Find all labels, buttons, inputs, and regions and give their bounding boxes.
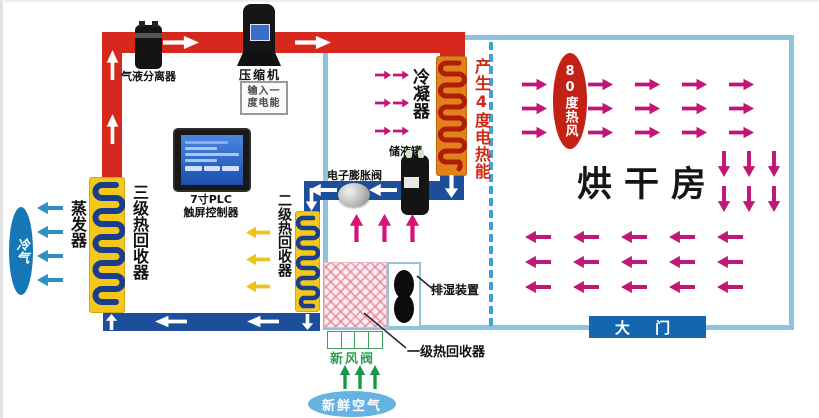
condenser-right-arrow: [375, 98, 391, 108]
gas-liquid-separator-label: 气液分离器: [121, 68, 176, 84]
warm-air-up-arrow: [377, 214, 392, 242]
hot-air-right-arrow: [729, 126, 754, 139]
pipe-flow-left-arrow: [247, 315, 279, 328]
pipe-flow-down-arrow: [444, 175, 459, 198]
hot-air-oval: 80度热风: [553, 53, 587, 149]
heat-pump-drying-diagram: 大 门 气液分离器 压缩机 输入一 度电能 7寸PLC 触屏控制器 储液罐: [0, 0, 819, 418]
hot-air-right-arrow: [729, 78, 754, 91]
fresh-air-up-arrow: [369, 365, 381, 389]
room-left-arrow: [525, 255, 551, 269]
fresh-air-ellipse: 新鲜空气: [308, 391, 396, 417]
cold-air-label: 冷气: [12, 238, 31, 264]
room-down-arrow: [717, 151, 731, 177]
hot-air-right-arrow: [682, 126, 707, 139]
warm-air-up-arrow: [405, 214, 420, 242]
pipe-flow-left-arrow: [369, 183, 397, 197]
room-left-arrow: [669, 230, 695, 244]
badge-line2: 度电能: [248, 98, 281, 111]
hot-air-right-arrow: [635, 78, 660, 91]
recovery-left-arrow: [246, 226, 270, 239]
hot-air-right-arrow: [588, 78, 613, 91]
plc-label-line2: 触屏控制器: [161, 206, 261, 219]
plc-label: 7寸PLC 触屏控制器: [161, 193, 261, 219]
pipe-flow-up-arrow: [106, 114, 119, 144]
fresh-air-valve-grille: [327, 331, 381, 349]
cold-air-left-arrow: [37, 273, 63, 287]
room-left-arrow: [573, 230, 599, 244]
tertiary-recovery-label: 三级热回收器: [127, 184, 151, 316]
compressor: [243, 4, 275, 56]
room-left-arrow: [669, 280, 695, 294]
primary-recovery-label: 一级热回收器: [407, 341, 485, 360]
pipe-flow-right-arrow: [295, 35, 331, 50]
room-down-arrow: [742, 151, 756, 177]
expansion-valve-label: 电子膨胀阀: [327, 167, 382, 183]
condenser-right-arrow: [393, 126, 409, 136]
room-down-arrow: [767, 151, 781, 177]
room-left-arrow: [573, 255, 599, 269]
hot-air-right-arrow: [588, 102, 613, 115]
main-door-label: 大 门: [615, 317, 680, 338]
hot-air-right-arrow: [729, 102, 754, 115]
cold-air-left-arrow: [37, 201, 63, 215]
condenser-right-arrow: [393, 98, 409, 108]
pipe-flow-up-arrow: [106, 50, 119, 80]
condenser-right-arrow: [375, 126, 391, 136]
warm-air-up-arrow: [349, 214, 364, 242]
room-left-arrow: [621, 280, 647, 294]
room-left-arrow: [621, 230, 647, 244]
cold-air-left-arrow: [37, 249, 63, 263]
hot-air-right-arrow: [635, 126, 660, 139]
primary-recovery-block: [324, 262, 387, 328]
evaporator-label: 蒸发器: [65, 200, 89, 290]
condenser-right-arrow: [393, 70, 409, 80]
pipe-flow-down-arrow: [301, 314, 314, 330]
hot-air-right-arrow: [588, 126, 613, 139]
room-left-arrow: [669, 255, 695, 269]
plc-label-line1: 7寸PLC: [161, 193, 261, 206]
pipe-flow-down-arrow: [305, 188, 318, 211]
secondary-recovery-label: 二级热回收器: [274, 193, 294, 313]
condenser-right-arrow: [375, 70, 391, 80]
fresh-air-up-arrow: [354, 365, 366, 389]
fan-icon: [394, 294, 414, 323]
fresh-air-label: 新鲜空气: [322, 395, 382, 414]
room-down-arrow: [742, 186, 756, 212]
hot-air-right-arrow: [522, 102, 547, 115]
room-left-arrow: [525, 280, 551, 294]
pipe-flow-left-arrow: [155, 315, 187, 328]
hot-air-right-arrow: [682, 102, 707, 115]
condenser-label: 冷凝器: [407, 68, 432, 132]
condenser-coil: [436, 56, 467, 176]
pipe-flow-right-arrow: [163, 35, 199, 50]
hot-air-80-label: 80度热风: [564, 64, 577, 138]
tertiary-recovery-coil: [89, 177, 125, 313]
room-left-arrow: [717, 280, 743, 294]
secondary-recovery-coil: [295, 211, 320, 312]
hot-pipe-to-condenser: [440, 32, 465, 59]
cold-air-left-arrow: [37, 225, 63, 239]
hot-air-right-arrow: [682, 78, 707, 91]
compressor-base: [237, 52, 281, 66]
room-down-arrow: [767, 186, 781, 212]
room-left-arrow: [717, 230, 743, 244]
recovery-left-arrow: [246, 253, 270, 266]
dehumidifier-unit: [387, 262, 421, 328]
badge-line1: 输入一: [248, 86, 281, 99]
recovery-left-arrow: [246, 280, 270, 293]
input-energy-badge: 输入一 度电能: [240, 81, 288, 115]
room-left-arrow: [525, 230, 551, 244]
hot-air-right-arrow: [522, 78, 547, 91]
heat-energy-label: 产生4度电热能: [469, 58, 493, 204]
hot-air-right-arrow: [522, 126, 547, 139]
liquid-receiver-tank: [401, 155, 429, 215]
room-left-arrow: [717, 255, 743, 269]
room-down-arrow: [717, 186, 731, 212]
room-left-arrow: [573, 280, 599, 294]
main-door: 大 门: [589, 316, 706, 338]
plc-screen: [181, 135, 243, 185]
pipe-flow-up-arrow: [105, 314, 118, 330]
cold-air-ellipse: 冷气: [9, 207, 33, 295]
hot-air-right-arrow: [635, 102, 660, 115]
dehumidifier-label: 排湿装置: [431, 281, 479, 298]
fresh-air-up-arrow: [339, 365, 351, 389]
drying-room-label: 烘干房: [577, 156, 718, 207]
room-left-arrow: [621, 255, 647, 269]
expansion-valve: [338, 183, 370, 207]
gas-liquid-separator: [135, 25, 162, 69]
